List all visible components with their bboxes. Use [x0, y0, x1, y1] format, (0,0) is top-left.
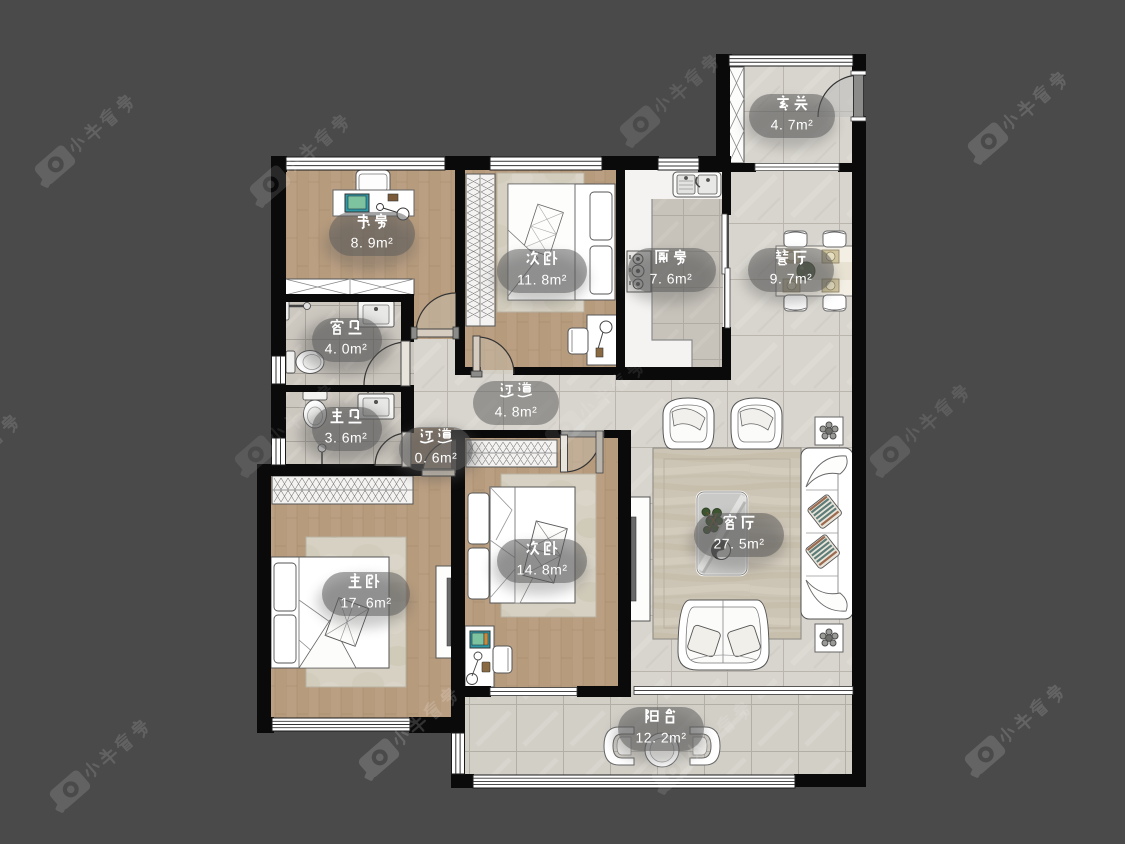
- svg-text:3. 6m²: 3. 6m²: [325, 430, 368, 446]
- svg-text:27. 5m²: 27. 5m²: [714, 536, 765, 552]
- svg-text:8. 9m²: 8. 9m²: [351, 235, 394, 251]
- svg-text:14. 8m²: 14. 8m²: [517, 562, 568, 578]
- svg-text:7. 6m²: 7. 6m²: [650, 271, 693, 287]
- svg-text:9. 7m²: 9. 7m²: [770, 271, 813, 287]
- svg-text:4. 8m²: 4. 8m²: [495, 404, 538, 420]
- svg-text:4. 0m²: 4. 0m²: [325, 341, 368, 357]
- svg-text:12. 2m²: 12. 2m²: [636, 730, 687, 746]
- svg-text:0. 6m²: 0. 6m²: [415, 450, 458, 466]
- svg-text:17. 6m²: 17. 6m²: [341, 595, 392, 611]
- svg-text:11. 8m²: 11. 8m²: [517, 272, 567, 288]
- svg-text:4. 7m²: 4. 7m²: [771, 117, 814, 133]
